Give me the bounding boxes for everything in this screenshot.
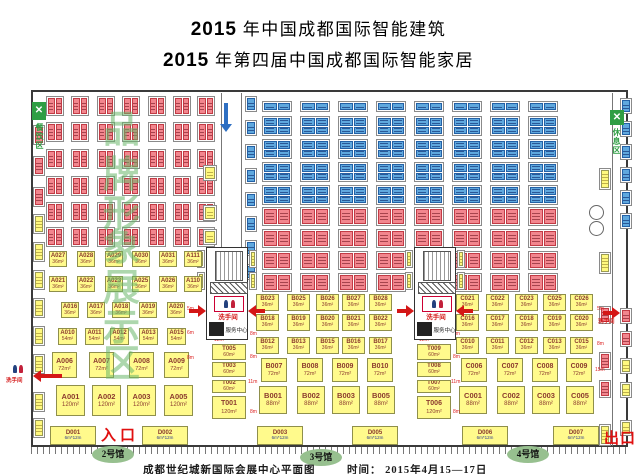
small-booth bbox=[430, 103, 443, 110]
small-booth bbox=[175, 204, 182, 220]
hall2-red-grid bbox=[71, 227, 89, 247]
booth-T007: T00760m² bbox=[417, 380, 451, 393]
hall34-blue-blocks bbox=[528, 139, 558, 159]
small-booth bbox=[56, 229, 63, 245]
small-booth bbox=[492, 103, 505, 110]
hall34-red-rows bbox=[338, 251, 368, 270]
right-inner-red bbox=[599, 380, 611, 398]
booth-id: C009 bbox=[571, 363, 588, 371]
small-booth bbox=[492, 253, 505, 268]
booth-size: 36m² bbox=[348, 323, 359, 329]
service-center-label: 服务中心 bbox=[224, 326, 249, 334]
booth-size: 6m*12m bbox=[272, 436, 289, 441]
small-booth bbox=[530, 275, 543, 290]
hall4-badge: 4号馆 bbox=[507, 446, 549, 463]
small-booth bbox=[81, 229, 88, 245]
corridor-blue-column bbox=[245, 96, 257, 112]
small-booth bbox=[468, 209, 481, 224]
booth-size: 36m² bbox=[348, 346, 359, 352]
right-outer-red bbox=[620, 308, 632, 324]
title-block: 2015 年中国成都国际智能建筑 2015 年第四届中国成都国际智能家居 bbox=[0, 14, 637, 76]
small-booth bbox=[544, 127, 557, 135]
facility-side-booths bbox=[249, 250, 257, 268]
booth-size: 36m² bbox=[322, 346, 333, 352]
small-booth bbox=[278, 275, 291, 290]
small-booth bbox=[264, 231, 277, 246]
hall34-red-rows bbox=[452, 207, 482, 226]
dimension-label: 15m bbox=[595, 368, 605, 373]
small-booth bbox=[73, 151, 80, 167]
booth-id: C005 bbox=[571, 392, 589, 401]
hall2-red-grid bbox=[71, 122, 89, 142]
hall34-blue-blocks bbox=[376, 139, 406, 159]
small-booth bbox=[278, 173, 291, 181]
small-booth bbox=[302, 231, 315, 246]
left-wall-yellow-column bbox=[33, 242, 45, 262]
small-booth bbox=[468, 141, 481, 149]
hall34-blue-blocks bbox=[300, 162, 330, 182]
small-booth bbox=[247, 170, 255, 182]
booth-C006: C00672m² bbox=[461, 358, 487, 382]
small-booth bbox=[205, 207, 215, 219]
booth-size: 36m² bbox=[549, 323, 560, 329]
booth-size: 72m² bbox=[468, 371, 481, 377]
small-booth bbox=[544, 275, 557, 290]
booth-size: 36m² bbox=[576, 346, 587, 352]
booth-size: 36m² bbox=[80, 285, 91, 291]
hall34-red-rows bbox=[300, 273, 330, 292]
small-booth bbox=[35, 328, 43, 344]
booth-C009: C00972m² bbox=[566, 358, 592, 382]
booth-D002: D0026m*12m bbox=[142, 426, 188, 445]
small-booth bbox=[468, 150, 481, 158]
dimension-label: 8m bbox=[250, 355, 257, 360]
hatch-band bbox=[210, 282, 248, 294]
hall34-red-rows bbox=[300, 207, 330, 226]
booth-A005: A005120m² bbox=[164, 385, 193, 416]
small-booth bbox=[264, 141, 277, 149]
small-booth bbox=[454, 164, 467, 172]
hall34-red-rows bbox=[300, 229, 330, 248]
small-booth bbox=[278, 141, 291, 149]
booth-B002: B00288m² bbox=[297, 386, 325, 414]
small-booth bbox=[354, 164, 367, 172]
small-booth bbox=[278, 253, 291, 268]
small-booth bbox=[430, 231, 443, 246]
booth-D006: D0066m*12m bbox=[462, 426, 508, 445]
hall34-red-rows bbox=[528, 273, 558, 292]
hatch-band bbox=[418, 282, 456, 294]
stairs-area bbox=[423, 251, 451, 281]
booth-A010: A01054m² bbox=[58, 328, 77, 345]
small-booth bbox=[354, 173, 367, 181]
small-booth bbox=[492, 164, 505, 172]
small-booth bbox=[416, 231, 429, 246]
booth-size: 36m² bbox=[462, 323, 473, 329]
hall2-red-grid bbox=[46, 122, 64, 142]
hall2-red-grid bbox=[46, 202, 64, 222]
title-year-1: 2015 bbox=[191, 19, 237, 40]
small-booth bbox=[316, 164, 329, 172]
booth-size: 54m² bbox=[143, 337, 154, 343]
right-outer-blue bbox=[620, 167, 632, 183]
watermark-char: 牌 bbox=[103, 157, 140, 194]
small-booth bbox=[530, 209, 543, 224]
small-booth bbox=[506, 150, 519, 158]
small-booth bbox=[601, 382, 609, 396]
booth-size: 88m² bbox=[539, 401, 553, 408]
booth-B025: B02536m² bbox=[287, 294, 310, 311]
hall34-red-rows bbox=[528, 251, 558, 270]
small-booth bbox=[35, 189, 43, 205]
watermark-char: 示 bbox=[103, 310, 140, 347]
small-booth bbox=[302, 141, 315, 149]
booth-id: B005 bbox=[372, 392, 390, 401]
small-booth bbox=[392, 173, 405, 181]
small-booth bbox=[378, 173, 391, 181]
hall34-blue-blocks bbox=[376, 116, 406, 136]
booth-B019: B01936m² bbox=[287, 314, 310, 331]
booth-A009: A00972m² bbox=[164, 352, 189, 378]
small-booth bbox=[340, 118, 353, 126]
small-booth bbox=[354, 150, 367, 158]
hall34-blue-blocks bbox=[300, 139, 330, 159]
booth-T009: T00960m² bbox=[417, 344, 451, 360]
booth-size: 36m² bbox=[90, 311, 101, 317]
small-booth bbox=[416, 187, 429, 195]
title-year-2: 2015 bbox=[163, 50, 209, 71]
restroom-label: 洗手间 bbox=[207, 311, 249, 321]
booth-B018: B01836m² bbox=[256, 314, 279, 331]
hall34-blue-blocks bbox=[528, 162, 558, 182]
booth-id: A001 bbox=[62, 393, 80, 402]
small-booth bbox=[302, 173, 315, 181]
dimension-label: 8m bbox=[187, 356, 194, 361]
booth-size: 120m² bbox=[426, 409, 442, 415]
venue-caption: 成都世纪城新国际会展中心平面图 bbox=[143, 462, 316, 474]
small-booth bbox=[48, 124, 55, 140]
small-booth bbox=[392, 275, 405, 290]
small-booth bbox=[278, 209, 291, 224]
small-booth bbox=[354, 127, 367, 135]
small-booth bbox=[316, 253, 329, 268]
booth-C017: C01736m² bbox=[486, 314, 509, 331]
hall34-blue-top-row bbox=[376, 101, 406, 112]
small-booth bbox=[183, 178, 190, 194]
small-booth bbox=[316, 275, 329, 290]
small-booth bbox=[430, 164, 443, 172]
hall2-red-grid bbox=[46, 149, 64, 169]
booth-size: 36m² bbox=[375, 303, 386, 309]
left-wall-yellow-column bbox=[33, 418, 45, 438]
booth-T005: T00560m² bbox=[212, 344, 246, 360]
booth-id: A002 bbox=[98, 393, 116, 402]
flow-arrow-shaft bbox=[224, 103, 228, 125]
small-booth bbox=[340, 187, 353, 195]
dark-block bbox=[417, 322, 432, 336]
booth-size: 60m² bbox=[223, 370, 234, 376]
booth-size: 36m² bbox=[521, 346, 532, 352]
booth-T006: T006120m² bbox=[417, 396, 451, 419]
booth-size: 36m² bbox=[187, 285, 198, 291]
small-booth bbox=[35, 394, 43, 410]
small-booth bbox=[183, 124, 190, 140]
booth-size: 36m² bbox=[262, 323, 273, 329]
small-booth bbox=[302, 118, 315, 126]
small-booth bbox=[454, 150, 467, 158]
small-booth bbox=[56, 178, 63, 194]
hall2-red-grid bbox=[71, 202, 89, 222]
small-booth bbox=[316, 141, 329, 149]
hall34-blue-blocks bbox=[414, 162, 444, 182]
small-booth bbox=[506, 253, 519, 268]
direction-arrow-head bbox=[198, 305, 206, 317]
booth-C005: C00588m² bbox=[566, 386, 594, 414]
dimension-label: 8m bbox=[597, 342, 604, 347]
restroom-left-label: 洗手间 bbox=[6, 376, 23, 384]
booth-C023: C02336m² bbox=[515, 294, 538, 311]
hall34-red-rows bbox=[452, 229, 482, 248]
direction-arrow-head bbox=[406, 305, 414, 317]
small-booth bbox=[392, 187, 405, 195]
small-booth bbox=[430, 209, 443, 224]
booth-D003: D0036m*12m bbox=[257, 426, 303, 445]
small-booth bbox=[468, 196, 481, 204]
small-booth bbox=[416, 103, 429, 110]
booth-id: A005 bbox=[170, 393, 188, 402]
booth-A015: A01554m² bbox=[167, 328, 186, 345]
small-booth bbox=[378, 196, 391, 204]
male-icon bbox=[432, 300, 436, 308]
small-booth bbox=[264, 253, 277, 268]
hall34-blue-blocks bbox=[452, 185, 482, 205]
booth-size: 88m² bbox=[266, 401, 280, 408]
booth-A026: A02636m² bbox=[159, 276, 177, 292]
small-booth bbox=[48, 204, 55, 220]
booth-C007: C00772m² bbox=[497, 358, 523, 382]
small-booth bbox=[454, 127, 467, 135]
small-booth bbox=[601, 254, 609, 272]
small-booth bbox=[392, 141, 405, 149]
booth-id: C006 bbox=[466, 363, 483, 371]
small-booth bbox=[392, 150, 405, 158]
booth-T003: T00360m² bbox=[212, 362, 246, 377]
booth-id: C007 bbox=[502, 363, 519, 371]
hall2-red-grid bbox=[148, 122, 166, 142]
booth-id: B008 bbox=[302, 363, 319, 371]
date-caption: 时间： 2015年4月15—17日 bbox=[347, 462, 487, 474]
small-booth bbox=[316, 173, 329, 181]
small-booth bbox=[378, 118, 391, 126]
booth-id: B003 bbox=[337, 392, 355, 401]
booth-B003: B00388m² bbox=[332, 386, 360, 414]
small-booth bbox=[530, 118, 543, 126]
hall2-red-grid bbox=[173, 149, 191, 169]
booth-A013: A01354m² bbox=[139, 328, 158, 345]
male-icon bbox=[13, 365, 17, 373]
small-booth bbox=[430, 173, 443, 181]
booth-size: 60m² bbox=[428, 353, 439, 359]
hall2-red-grid bbox=[173, 176, 191, 196]
small-booth bbox=[530, 196, 543, 204]
booth-size: 54m² bbox=[89, 337, 100, 343]
small-booth bbox=[454, 196, 467, 204]
left-wall-yellow-column bbox=[33, 270, 45, 290]
restroom-sign bbox=[422, 296, 452, 312]
direction-arrow-head bbox=[456, 305, 464, 317]
right-inner-yellow bbox=[599, 168, 611, 190]
small-booth bbox=[530, 141, 543, 149]
booth-A002: A002120m² bbox=[92, 385, 121, 416]
small-booth bbox=[73, 204, 80, 220]
hall2-red-grid bbox=[197, 96, 215, 116]
hall34-red-rows bbox=[338, 229, 368, 248]
dark-block bbox=[209, 322, 224, 336]
small-booth bbox=[278, 187, 291, 195]
hall34-blue-blocks bbox=[490, 139, 520, 159]
watermark-char: 象 bbox=[103, 230, 140, 267]
small-booth bbox=[278, 150, 291, 158]
hall34-red-rows bbox=[338, 273, 368, 292]
small-booth bbox=[175, 98, 182, 114]
small-booth bbox=[175, 124, 182, 140]
hall34-blue-blocks bbox=[376, 162, 406, 182]
booth-C011: C01136m² bbox=[486, 337, 509, 354]
small-booth bbox=[81, 178, 88, 194]
booth-A110: A11036m² bbox=[184, 276, 202, 292]
small-booth bbox=[183, 151, 190, 167]
small-booth bbox=[392, 231, 405, 246]
facility-side-booths bbox=[249, 272, 257, 290]
booth-B020: B02036m² bbox=[316, 314, 339, 331]
booth-B009: B00972m² bbox=[332, 358, 358, 382]
booth-size: 72m² bbox=[268, 371, 281, 377]
booth-C020: C02036m² bbox=[570, 314, 593, 331]
small-booth bbox=[416, 209, 429, 224]
booth-T001: T001120m² bbox=[212, 396, 246, 419]
hall34-red-rows bbox=[490, 251, 520, 270]
hall34-red-rows bbox=[262, 273, 292, 292]
hall34-red-rows bbox=[376, 273, 406, 292]
small-booth bbox=[378, 209, 391, 224]
booth-size: 36m² bbox=[462, 346, 473, 352]
direction-arrow-shaft bbox=[255, 309, 265, 313]
hall2-red-grid bbox=[71, 96, 89, 116]
booth-id: C003 bbox=[537, 392, 555, 401]
hall34-blue-blocks bbox=[414, 116, 444, 136]
booth-C002: C00288m² bbox=[497, 386, 525, 414]
small-booth bbox=[392, 253, 405, 268]
title-text-2: 年第四届中国成都国际智能家居 bbox=[209, 51, 474, 70]
booth-C010: C01036m² bbox=[456, 337, 479, 354]
booth-size: 88m² bbox=[466, 401, 480, 408]
hall34-red-rows bbox=[338, 207, 368, 226]
small-booth bbox=[207, 124, 214, 140]
small-booth bbox=[430, 150, 443, 158]
booth-size: 88m² bbox=[573, 401, 587, 408]
booth-A021: A02136m² bbox=[49, 276, 67, 292]
small-booth bbox=[544, 187, 557, 195]
small-booth bbox=[158, 124, 165, 140]
title-line-1: 2015 年中国成都国际智能建筑 bbox=[0, 14, 637, 45]
hall34-blue-blocks bbox=[490, 116, 520, 136]
booth-size: 6m*12m bbox=[568, 436, 585, 441]
booth-A022: A02236m² bbox=[77, 276, 95, 292]
small-booth bbox=[264, 196, 277, 204]
small-booth bbox=[247, 194, 255, 206]
small-booth bbox=[530, 173, 543, 181]
small-booth bbox=[544, 118, 557, 126]
small-booth bbox=[530, 164, 543, 172]
small-booth bbox=[73, 229, 80, 245]
booth-size: 36m² bbox=[187, 260, 198, 266]
booth-id: B001 bbox=[264, 392, 282, 401]
booth-C013: C01336m² bbox=[543, 337, 566, 354]
hall34-red-rows bbox=[490, 207, 520, 226]
booth-A027: A02736m² bbox=[49, 251, 67, 267]
hall34-blue-blocks bbox=[262, 185, 292, 205]
hall34-blue-top-row bbox=[300, 101, 330, 112]
hall34-blue-top-row bbox=[490, 101, 520, 112]
small-booth bbox=[354, 141, 367, 149]
hall2-red-grid bbox=[148, 227, 166, 247]
booth-size: 72m² bbox=[304, 371, 317, 377]
small-booth bbox=[544, 253, 557, 268]
booth-size: 6m*12m bbox=[367, 436, 384, 441]
booth-B026: B02636m² bbox=[316, 294, 339, 311]
booth-id: C002 bbox=[502, 392, 520, 401]
booth-size: 36m² bbox=[293, 323, 304, 329]
booth-size: 36m² bbox=[162, 285, 173, 291]
small-booth bbox=[48, 178, 55, 194]
booth-B012: B01236m² bbox=[256, 337, 279, 354]
small-booth bbox=[35, 300, 43, 316]
small-booth bbox=[622, 215, 630, 227]
small-booth bbox=[454, 141, 467, 149]
hall34-red-rows bbox=[262, 229, 292, 248]
hall34-blue-top-row bbox=[452, 101, 482, 112]
small-booth bbox=[48, 151, 55, 167]
booth-A020: A02036m² bbox=[167, 302, 185, 318]
small-booth bbox=[81, 204, 88, 220]
booth-size: 88m² bbox=[304, 401, 318, 408]
small-booth bbox=[622, 146, 630, 158]
booth-id: T001 bbox=[221, 400, 237, 408]
hall34-blue-blocks bbox=[338, 139, 368, 159]
left-wall-yellow-column bbox=[33, 392, 45, 412]
booth-size: 36m² bbox=[262, 303, 273, 309]
small-booth bbox=[506, 164, 519, 172]
small-booth bbox=[316, 231, 329, 246]
small-booth bbox=[544, 231, 557, 246]
hall2-red-grid bbox=[148, 149, 166, 169]
booth-C003: C00388m² bbox=[532, 386, 560, 414]
restroom-left-icons bbox=[13, 365, 23, 373]
booth-size: 120m² bbox=[133, 402, 150, 409]
direction-arrow-head bbox=[248, 305, 256, 317]
hall2-red-grid bbox=[197, 122, 215, 142]
small-booth bbox=[158, 98, 165, 114]
booth-size: 36m² bbox=[549, 346, 560, 352]
left-wall-yellow-column bbox=[33, 214, 45, 234]
booth-size: 36m² bbox=[52, 260, 63, 266]
small-booth bbox=[264, 187, 277, 195]
hall34-blue-blocks bbox=[376, 185, 406, 205]
small-booth bbox=[205, 231, 215, 243]
restroom-right-label: 洗手间 bbox=[598, 317, 615, 325]
small-booth bbox=[506, 275, 519, 290]
booth-size: 72m² bbox=[504, 371, 517, 377]
